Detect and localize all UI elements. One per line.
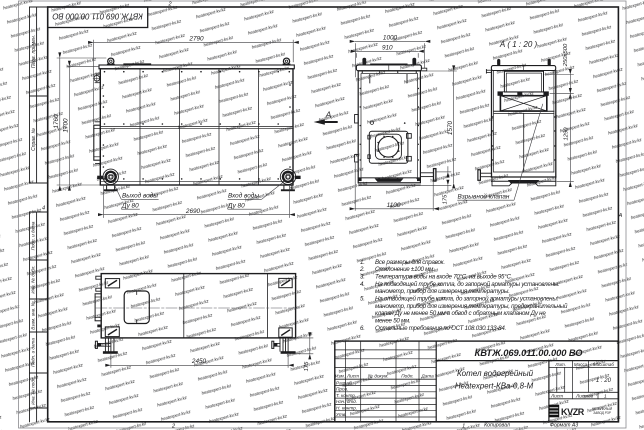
svg-text:КОТЕЛЬНЫЙ: КОТЕЛЬНЫЙ xyxy=(592,407,613,411)
svg-text:Т. контр.: Т. контр. xyxy=(336,393,356,398)
svg-text:Изм.: Изм. xyxy=(335,373,345,378)
svg-text:Heatexpert-КВа-0,8-М: Heatexpert-КВа-0,8-М xyxy=(455,382,534,391)
svg-text:1760: 1760 xyxy=(53,114,60,129)
svg-text:Подп. и дата: Подп. и дата xyxy=(31,338,36,367)
svg-text:5.: 5. xyxy=(360,296,365,303)
svg-text:На подводящей трубе котла, до: На подводящей трубе котла, до запорной а… xyxy=(375,281,560,288)
svg-text:Лит.: Лит. xyxy=(554,362,566,367)
svg-text:Взам. инв. №: Взам. инв. № xyxy=(31,301,36,329)
svg-text:1100: 1100 xyxy=(387,202,401,209)
svg-text:Все размеры для справок.: Все размеры для справок. xyxy=(375,259,445,266)
svg-text:Выход воды: Выход воды xyxy=(122,191,158,199)
svg-text:175: 175 xyxy=(304,361,310,371)
svg-text:клапан Ду не менее 50 мм и обв: клапан Ду не менее 50 мм и обвод с обрат… xyxy=(375,310,546,317)
svg-text:Нач. отд.: Нач. отд. xyxy=(336,399,357,404)
svg-text:1: 1 xyxy=(462,424,465,430)
svg-text:Утв.: Утв. xyxy=(336,412,347,417)
svg-text:Формат А3: Формат А3 xyxy=(550,423,578,429)
svg-text:Отклонение ±100 мм.: Отклонение ±100 мм. xyxy=(375,266,435,273)
svg-text:910: 910 xyxy=(382,45,393,52)
svg-text:2690: 2690 xyxy=(185,208,201,215)
svg-text:Температура воды на входе 70°С: Температура воды на входе 70°С, на выход… xyxy=(375,274,512,281)
svg-text:2450: 2450 xyxy=(191,358,207,365)
svg-text:Масштаб: Масштаб xyxy=(593,362,614,367)
svg-text:№ докум.: № докум. xyxy=(368,373,389,378)
svg-text:Взрывной клапан: Взрывной клапан xyxy=(458,192,510,200)
svg-text:Листов: Листов xyxy=(575,394,594,399)
svg-text:1000: 1000 xyxy=(383,35,398,42)
svg-text:Пров.: Пров. xyxy=(336,387,348,392)
svg-text:манометр, прибор для измерения: манометр, прибор для измерения температу… xyxy=(375,303,568,310)
svg-text:250х500: 250х500 xyxy=(563,43,569,67)
svg-text:1: 1 xyxy=(604,394,607,399)
svg-text:Остальные требования по ОСТ 10: Остальные требования по ОСТ 108.030.133-… xyxy=(375,325,506,332)
svg-text:манометр, прибор для измерения: манометр, прибор для измерения температу… xyxy=(375,288,510,295)
svg-text:На отводящей трубе котла, до з: На отводящей трубе котла, до запорной ар… xyxy=(375,296,559,303)
svg-text:Подп. и дата: Подп. и дата xyxy=(31,221,36,250)
svg-text:1290: 1290 xyxy=(564,127,570,141)
svg-text:Справ. №: Справ. № xyxy=(31,128,37,151)
svg-text:Масса: Масса xyxy=(574,362,588,367)
svg-text:Разраб.: Разраб. xyxy=(336,380,353,385)
svg-text:1 : 20: 1 : 20 xyxy=(596,378,612,384)
svg-text:KVZR: KVZR xyxy=(561,407,585,417)
svg-text:Дата: Дата xyxy=(420,373,434,378)
svg-text:4: 4 xyxy=(42,206,45,212)
svg-text:2.: 2. xyxy=(359,266,365,273)
svg-text:Копировал: Копировал xyxy=(484,423,510,429)
svg-text:6.: 6. xyxy=(360,325,365,332)
svg-text:Инв. № дубл.: Инв. № дубл. xyxy=(31,265,36,293)
svg-text:Ду 80: Ду 80 xyxy=(227,203,245,210)
svg-text:Лист: Лист xyxy=(346,373,359,378)
svg-text:175: 175 xyxy=(442,194,448,204)
svg-text:менее 50 мм.: менее 50 мм. xyxy=(375,318,411,325)
svg-text:А ( 1 : 20 ): А ( 1 : 20 ) xyxy=(499,40,538,49)
svg-text:4.: 4. xyxy=(360,281,365,288)
svg-text:Подп.: Подп. xyxy=(401,373,413,378)
svg-text:Вход воды: Вход воды xyxy=(228,191,259,199)
svg-text:Котел водогрейный: Котел водогрейный xyxy=(457,369,534,378)
svg-text:1.: 1. xyxy=(360,259,365,266)
svg-text:Лист: Лист xyxy=(550,394,563,399)
svg-text:А: А xyxy=(618,213,623,219)
svg-text:ЗАВОД РЗР: ЗАВОД РЗР xyxy=(593,411,612,415)
svg-text:Ду 80: Ду 80 xyxy=(121,203,139,210)
svg-text:КВТЖ.069.011.00.000 ВО: КВТЖ.069.011.00.000 ВО xyxy=(52,12,142,21)
svg-text:А: А xyxy=(325,109,332,119)
svg-text:1700: 1700 xyxy=(63,118,70,133)
svg-text:Н. контр.: Н. контр. xyxy=(336,406,357,411)
svg-text:1570: 1570 xyxy=(447,120,454,135)
svg-text:3.: 3. xyxy=(360,274,365,281)
svg-text:Инв. № подл.: Инв. № подл. xyxy=(31,376,36,405)
svg-text:КВТЖ.069.011.00.000 ВО: КВТЖ.069.011.00.000 ВО xyxy=(475,347,584,358)
svg-text:Перв. примен.: Перв. примен. xyxy=(31,35,37,68)
svg-text:2790: 2790 xyxy=(188,36,204,43)
